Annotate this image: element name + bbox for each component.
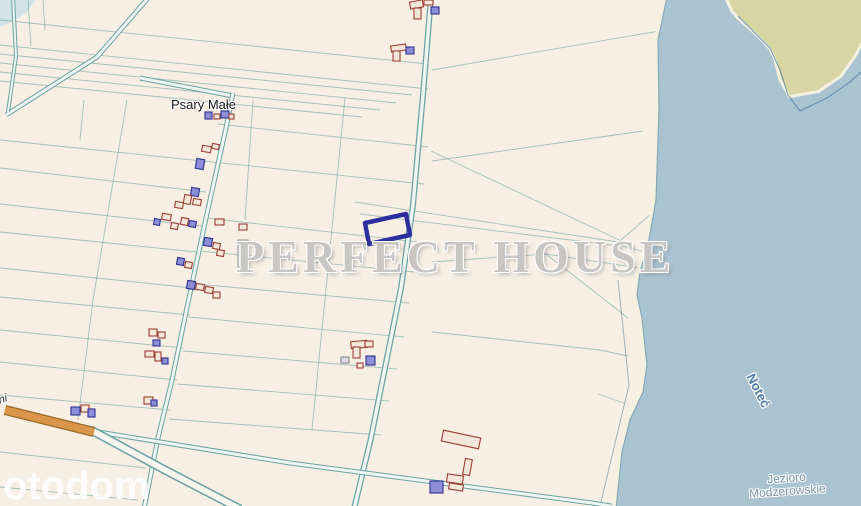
building: [176, 257, 184, 265]
building: [71, 407, 80, 415]
building: [175, 201, 184, 208]
building: [217, 249, 225, 256]
building: [88, 409, 95, 417]
building: [229, 114, 234, 119]
building: [221, 111, 229, 118]
building: [202, 145, 212, 152]
building: [215, 219, 224, 225]
building: [195, 158, 205, 169]
building: [154, 219, 161, 226]
building: [153, 340, 160, 346]
building: [239, 224, 247, 230]
building: [149, 329, 157, 336]
building: [357, 363, 363, 368]
map-graphics: [0, 0, 861, 506]
building: [189, 220, 197, 227]
building: [424, 0, 433, 5]
building: [430, 481, 443, 493]
building: [213, 242, 221, 249]
building: [353, 347, 360, 358]
building: [196, 283, 205, 290]
building: [406, 47, 414, 54]
building: [341, 357, 349, 363]
building: [205, 112, 212, 119]
building: [162, 358, 168, 364]
building: [151, 400, 157, 406]
building: [185, 261, 193, 268]
building: [171, 222, 179, 229]
building: [414, 8, 421, 19]
building: [431, 7, 439, 14]
building: [158, 332, 165, 338]
building: [145, 351, 154, 357]
building: [186, 280, 195, 289]
building: [193, 198, 202, 205]
building: [366, 356, 375, 365]
building: [162, 213, 172, 220]
building: [155, 352, 161, 361]
building: [238, 240, 248, 267]
building: [212, 143, 220, 149]
building: [449, 483, 464, 491]
building: [180, 217, 188, 225]
map-canvas[interactable]: Psary Małe PERFECT HOUSE Noteć Jezioro M…: [0, 0, 861, 506]
building: [214, 114, 220, 119]
building: [393, 51, 400, 61]
building: [183, 194, 191, 204]
building: [365, 341, 373, 347]
building: [205, 286, 214, 293]
building: [213, 292, 220, 298]
building: [203, 237, 212, 246]
